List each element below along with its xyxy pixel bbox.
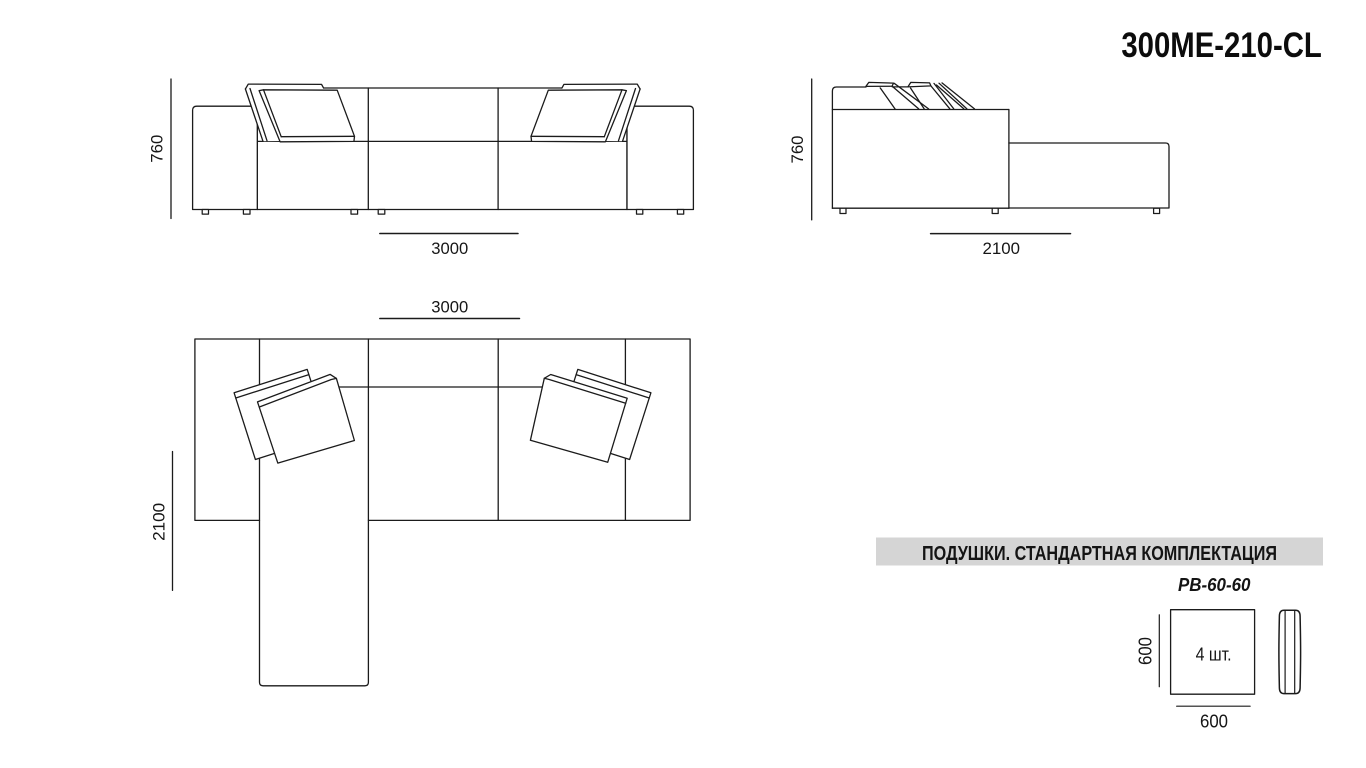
svg-text:600: 600: [1136, 637, 1156, 665]
svg-text:760: 760: [788, 136, 807, 164]
svg-text:4 шт.: 4 шт.: [1196, 645, 1232, 665]
svg-text:PB-60-60: PB-60-60: [1178, 575, 1251, 595]
svg-text:2100: 2100: [983, 239, 1021, 258]
svg-text:3000: 3000: [431, 298, 468, 317]
svg-text:3000: 3000: [431, 239, 468, 258]
svg-text:600: 600: [1200, 711, 1228, 731]
svg-text:300ME-210-CL: 300ME-210-CL: [1121, 26, 1322, 65]
svg-text:ПОДУШКИ. СТАНДАРТНАЯ КОМПЛЕКТА: ПОДУШКИ. СТАНДАРТНАЯ КОМПЛЕКТАЦИЯ: [922, 543, 1277, 565]
svg-text:760: 760: [148, 135, 167, 163]
svg-text:2100: 2100: [149, 503, 168, 541]
